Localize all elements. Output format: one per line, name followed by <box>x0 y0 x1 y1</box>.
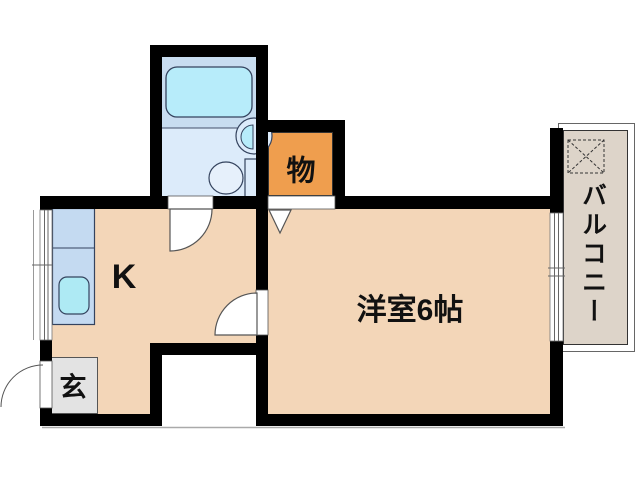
wall-notch-left <box>150 343 162 426</box>
western-room-label: 洋室6帖 <box>357 296 464 326</box>
window-left <box>32 210 52 340</box>
entrance-label: 玄 <box>60 375 87 402</box>
closet-door-opening <box>268 196 335 209</box>
kitchen-sink <box>59 277 89 314</box>
entrance-door-opening <box>40 361 52 408</box>
window-balcony <box>548 213 565 341</box>
floor-plan-canvas: K 玄 物 洋室6帖 バルコニー <box>0 0 640 480</box>
balcony-label: バルコニー <box>580 182 605 327</box>
wall-bathroom-right <box>256 45 268 209</box>
closet-label: 物 <box>286 158 315 187</box>
wall-bathroom-top <box>150 45 268 57</box>
toilet-bowl <box>209 162 243 194</box>
wall-bottom-right <box>256 414 563 426</box>
wall-notch-top <box>150 343 268 355</box>
entrance-door-swing <box>1 365 43 407</box>
bathroom-door-opening <box>168 196 213 209</box>
wall-bathroom-left <box>150 45 162 209</box>
kitchen-label: K <box>112 260 137 294</box>
room-door-opening <box>256 290 268 335</box>
bathtub <box>166 67 252 117</box>
wall-notch-right <box>256 343 268 426</box>
floor-plan-drawing <box>0 0 640 480</box>
wall-bottom-left <box>40 414 162 426</box>
floor-areas <box>51 57 551 414</box>
